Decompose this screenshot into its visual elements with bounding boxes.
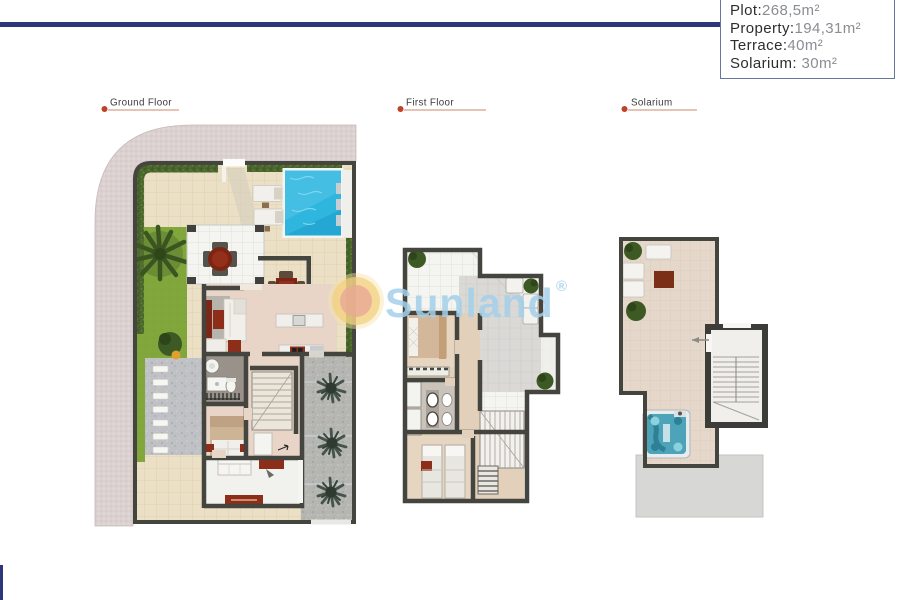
svg-text:First Floor: First Floor — [406, 98, 454, 109]
svg-text:®: ® — [556, 278, 567, 295]
svg-text:Solarium: Solarium — [631, 98, 672, 109]
svg-text:Ground Floor: Ground Floor — [110, 98, 172, 109]
svg-text:Sunland: Sunland — [385, 280, 554, 326]
